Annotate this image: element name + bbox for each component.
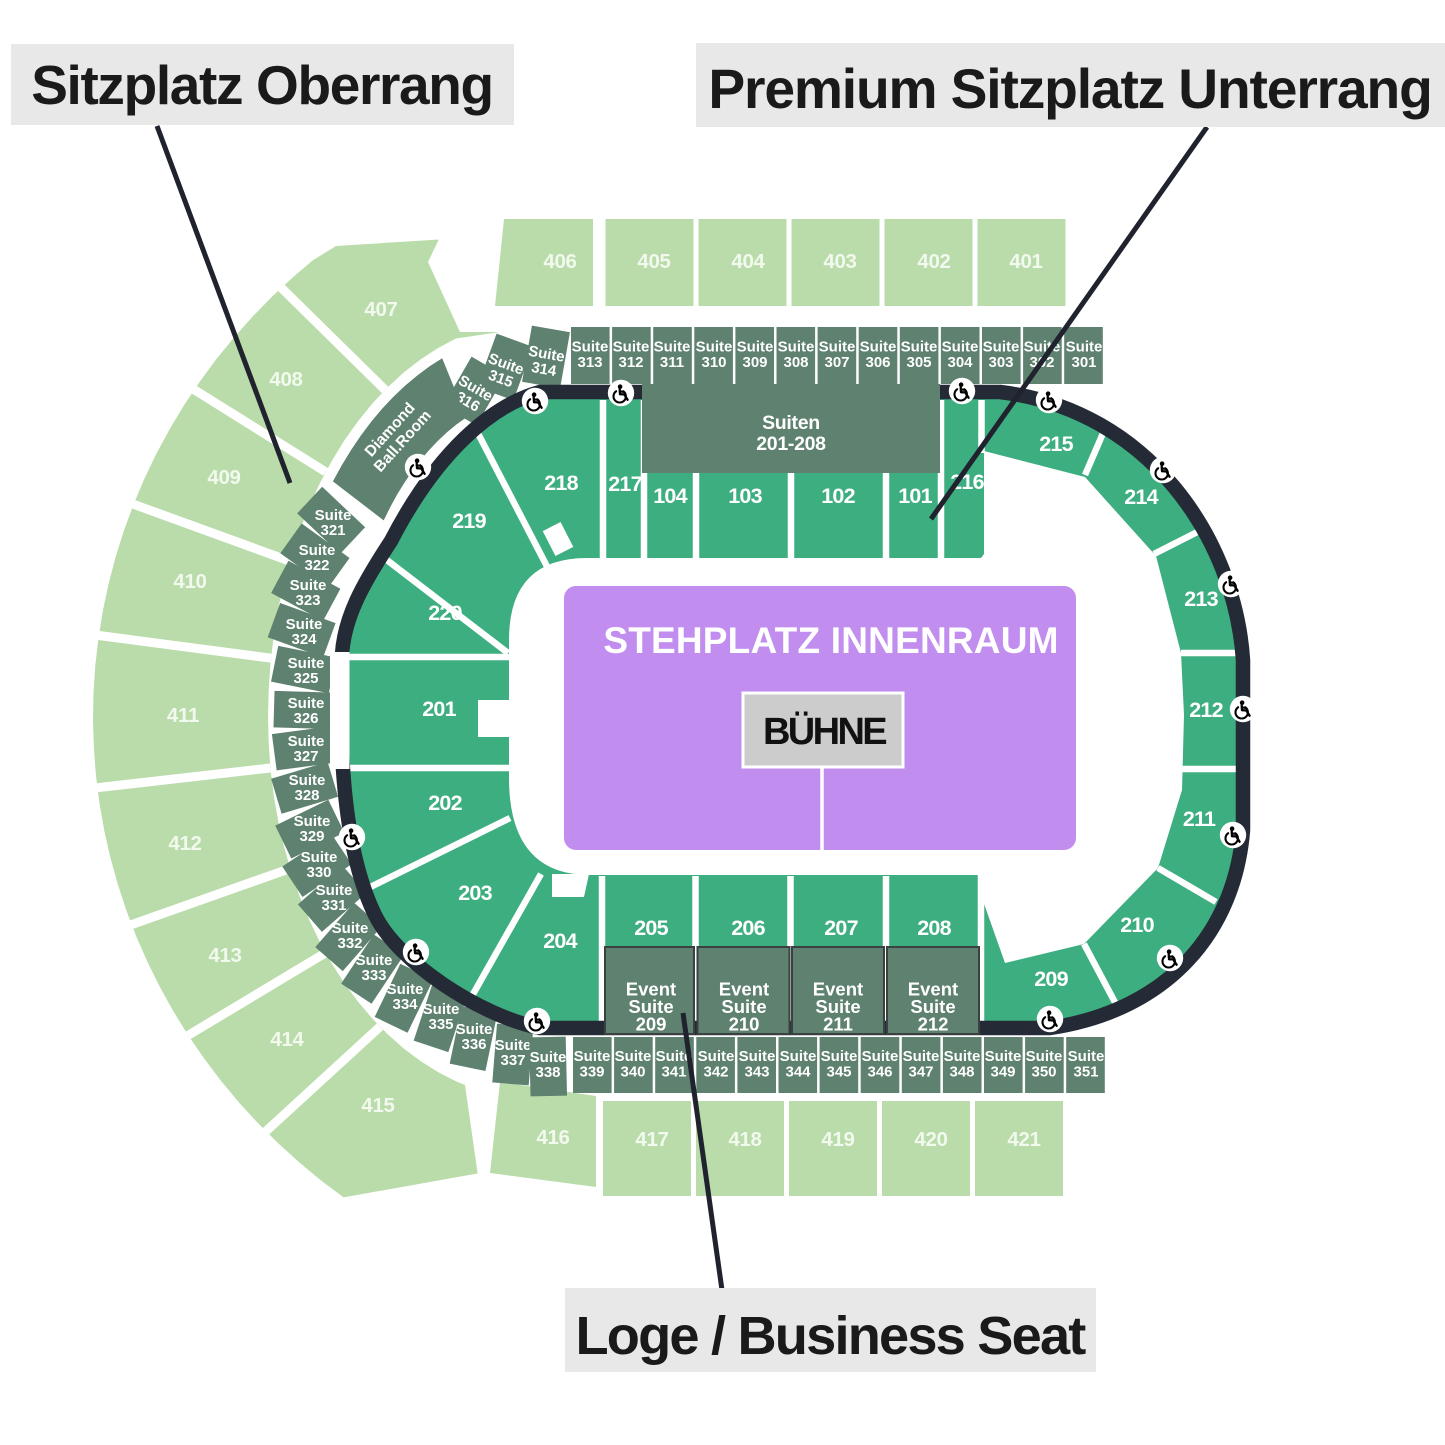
svg-text:418: 418 [728, 1128, 761, 1151]
svg-text:Premium Sitzplatz Unterrang: Premium Sitzplatz Unterrang [708, 58, 1431, 120]
svg-text:420: 420 [914, 1128, 947, 1151]
svg-text:404: 404 [731, 250, 765, 273]
svg-text:215: 215 [1039, 432, 1073, 456]
svg-text:411: 411 [167, 704, 199, 727]
svg-text:401: 401 [1009, 250, 1042, 273]
svg-text:203: 203 [458, 881, 492, 905]
svg-text:412: 412 [168, 832, 201, 855]
svg-text:213: 213 [1184, 587, 1218, 611]
svg-text:210: 210 [1120, 913, 1154, 937]
svg-text:406: 406 [543, 250, 576, 273]
svg-text:405: 405 [637, 250, 670, 273]
svg-text:STEHPLATZ INNENRAUM: STEHPLATZ INNENRAUM [603, 620, 1058, 661]
svg-text:Sitzplatz Oberrang: Sitzplatz Oberrang [31, 54, 493, 116]
svg-text:211: 211 [1183, 807, 1216, 831]
svg-text:415: 415 [361, 1094, 394, 1117]
svg-text:204: 204 [543, 929, 577, 953]
svg-text:421: 421 [1007, 1128, 1040, 1151]
svg-text:104: 104 [653, 484, 687, 508]
svg-text:102: 102 [821, 484, 855, 508]
svg-text:417: 417 [635, 1128, 668, 1151]
svg-text:220: 220 [428, 601, 462, 625]
svg-text:BÜHNE: BÜHNE [763, 710, 886, 753]
svg-text:408: 408 [269, 368, 302, 391]
svg-text:202: 202 [428, 791, 462, 815]
svg-text:207: 207 [824, 916, 858, 940]
svg-text:402: 402 [917, 250, 950, 273]
svg-text:407: 407 [364, 298, 397, 321]
svg-text:416: 416 [536, 1126, 569, 1149]
svg-text:219: 219 [452, 509, 486, 533]
svg-text:217: 217 [608, 472, 642, 496]
svg-text:208: 208 [917, 916, 951, 940]
svg-text:414: 414 [270, 1028, 304, 1051]
svg-text:Suiten201-208: Suiten201-208 [756, 412, 826, 455]
svg-text:410: 410 [173, 570, 206, 593]
svg-text:Loge / Business Seat: Loge / Business Seat [575, 1306, 1086, 1366]
svg-text:209: 209 [1034, 967, 1068, 991]
svg-text:201: 201 [422, 697, 456, 721]
svg-text:212: 212 [1189, 698, 1223, 722]
svg-text:206: 206 [731, 916, 765, 940]
svg-text:218: 218 [544, 471, 578, 495]
svg-text:403: 403 [823, 250, 856, 273]
svg-text:103: 103 [728, 484, 762, 508]
svg-text:205: 205 [634, 916, 668, 940]
svg-text:214: 214 [1124, 485, 1158, 509]
svg-text:409: 409 [207, 466, 240, 489]
svg-text:413: 413 [208, 944, 241, 967]
svg-text:419: 419 [821, 1128, 854, 1151]
svg-text:101: 101 [898, 484, 932, 508]
